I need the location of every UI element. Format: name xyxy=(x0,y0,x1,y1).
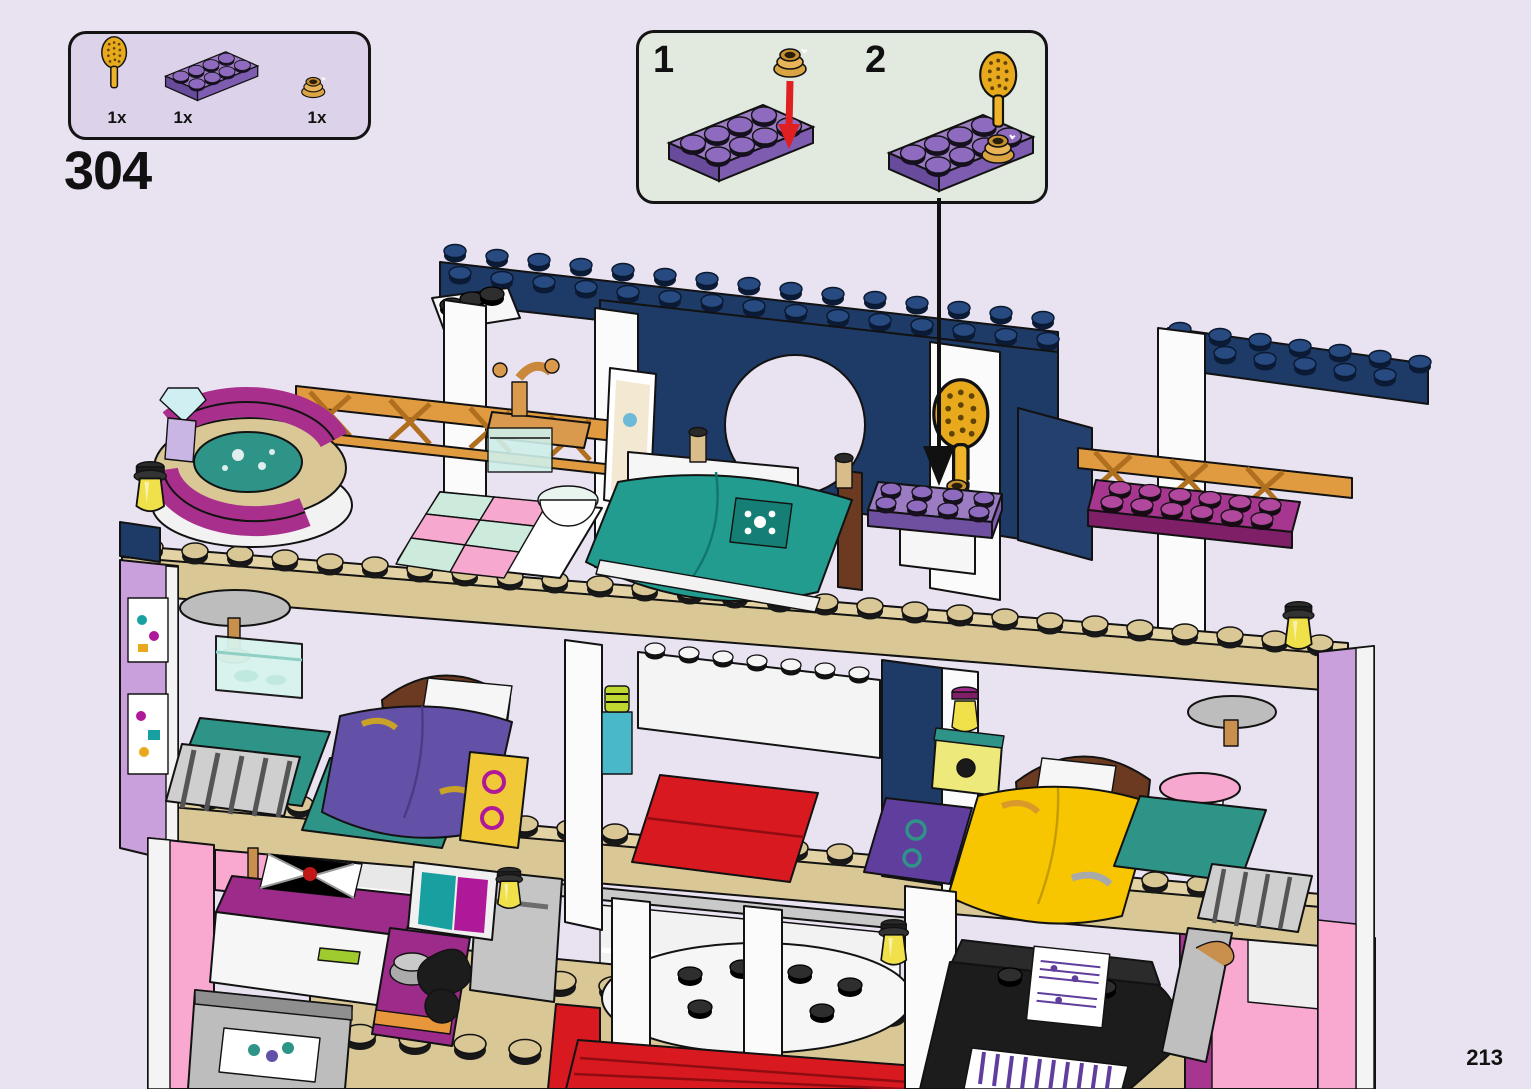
middle-floor-right-wall xyxy=(1318,646,1374,1089)
teal-mat-right xyxy=(1114,796,1266,882)
gray-appliance xyxy=(470,870,562,1002)
front-pillar xyxy=(905,886,956,1089)
hairbrush-part-icon xyxy=(102,37,127,88)
revolving-door xyxy=(602,898,912,1062)
envelope-tile xyxy=(260,854,362,898)
pink-round-table-right xyxy=(1160,773,1240,842)
cyan-box xyxy=(602,712,632,774)
door-platform xyxy=(602,943,912,1053)
roof-band-right xyxy=(1168,323,1431,405)
gray-slide xyxy=(1162,928,1232,1062)
ground-left-pink-wall xyxy=(148,838,258,1089)
gold-faucet xyxy=(493,359,559,416)
lantern-ground-center xyxy=(879,920,908,965)
gold-table-leg xyxy=(248,848,258,900)
substeps-callout-box: 1 2 xyxy=(636,30,1048,204)
hanging-disc-lamp xyxy=(180,590,290,663)
substep1-gold-knob xyxy=(774,49,807,77)
floral-tile xyxy=(730,498,792,548)
ground-floor-back-walls xyxy=(215,842,1375,1089)
gold-lattice-fence-left xyxy=(296,386,642,478)
pink-round-table-left xyxy=(390,688,482,768)
lower-floor-slab xyxy=(148,784,1332,947)
red-mat xyxy=(632,775,818,882)
ground-tan-floor xyxy=(310,935,1185,1089)
door-panel xyxy=(744,906,782,1062)
yellow-bed xyxy=(948,756,1154,923)
door-panel xyxy=(612,898,650,1052)
callout-pointer-arrow xyxy=(923,198,955,486)
gold-knob-part-icon xyxy=(302,77,326,97)
navy-wall-block xyxy=(882,660,942,885)
yellow-nightstand xyxy=(932,728,1004,796)
lavender-plate-part-icon xyxy=(166,52,258,101)
red-stairs xyxy=(548,1004,942,1089)
parts-callout-box: 1x 1x 1x xyxy=(68,31,371,140)
lantern-top-right xyxy=(1283,602,1314,649)
lantern-top-left xyxy=(134,462,166,511)
kitchen-counter xyxy=(210,854,562,1008)
teal-mats-left xyxy=(172,718,470,848)
music-sheet-tile xyxy=(1026,946,1109,1028)
lime-cup xyxy=(605,686,629,712)
page-number: 213 xyxy=(1466,1045,1503,1071)
radiator-left xyxy=(166,744,300,817)
lantern-magenta-cap xyxy=(952,687,978,732)
mezzanine-railing xyxy=(565,640,880,930)
target-plate-with-hairbrush xyxy=(868,380,1002,574)
grand-piano xyxy=(920,940,1178,1089)
vanity-counter xyxy=(486,412,590,448)
purple-bed xyxy=(322,675,512,837)
lantern-ground-left xyxy=(496,867,523,908)
hairbrush-on-model xyxy=(934,380,988,492)
french-horn xyxy=(1196,941,1234,966)
yellow-rug xyxy=(460,752,528,848)
wall-art-frame xyxy=(128,598,168,662)
step-number: 304 xyxy=(64,140,151,202)
sink-basin xyxy=(488,428,552,472)
kitchen-island-with-dog xyxy=(372,928,471,1046)
gold-lattice-fence-right xyxy=(1078,448,1352,508)
roof-band xyxy=(440,245,1059,373)
magenta-plate xyxy=(1088,480,1300,548)
upper-floor-slab xyxy=(122,539,1348,692)
middle-floor-left-wall xyxy=(120,560,178,862)
wall-poster xyxy=(604,368,656,508)
part-quantity: 1x xyxy=(93,108,141,128)
dog-figure xyxy=(418,949,471,997)
piano-keyboard xyxy=(964,1048,1128,1089)
top-floor-pillars xyxy=(432,287,1205,650)
part-quantity: 1x xyxy=(159,108,207,128)
computer-screen xyxy=(408,862,498,940)
part-quantity: 1x xyxy=(293,108,341,128)
bathroom xyxy=(396,359,602,578)
purple-rug xyxy=(864,798,972,884)
radiator-right xyxy=(1198,864,1312,932)
substeps-illustrations xyxy=(639,33,1039,194)
teal-bed xyxy=(586,428,862,613)
recycle-bin xyxy=(188,990,352,1089)
mushroom-lamp xyxy=(1188,696,1276,746)
middle-aquarium xyxy=(216,636,302,698)
wall-art-frame xyxy=(128,694,168,774)
hot-tub xyxy=(120,388,352,562)
top-floor-back-wall xyxy=(600,300,1092,560)
crystal-decoration xyxy=(160,388,206,422)
round-window xyxy=(725,355,865,495)
toilet xyxy=(538,486,598,526)
